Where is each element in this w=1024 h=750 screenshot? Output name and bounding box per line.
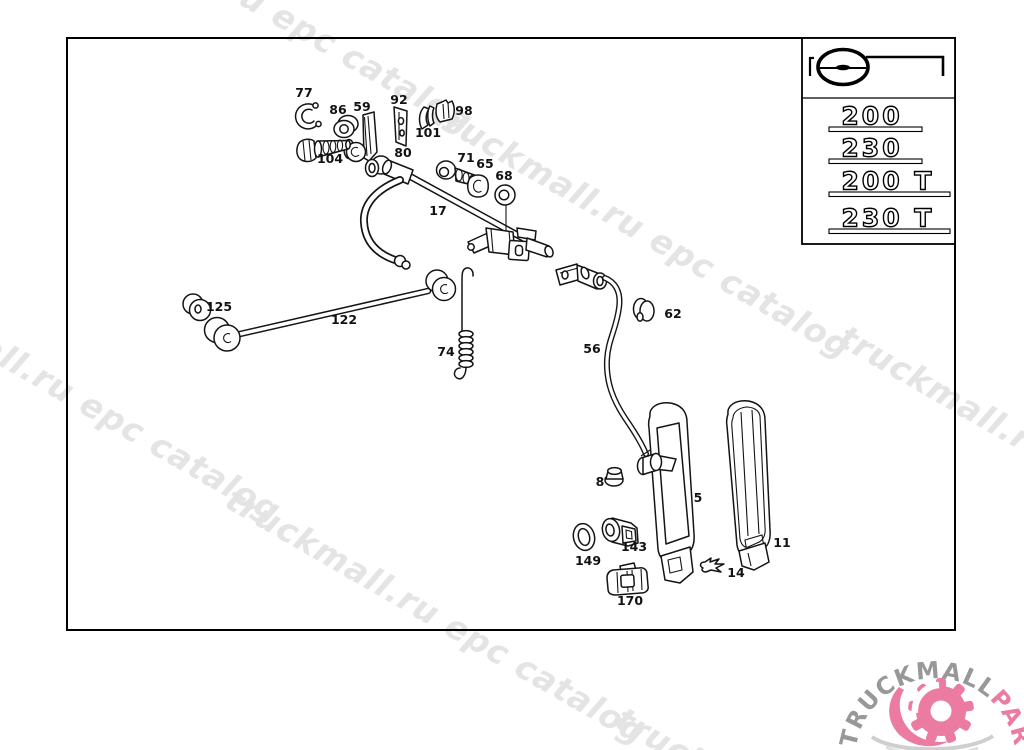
part-11-pedal-pad (727, 401, 771, 570)
part-68-washer (495, 185, 515, 205)
part-label-62: 62 (664, 306, 681, 321)
part-label-143: 143 (621, 539, 647, 554)
badge-200t: 200 T (842, 167, 935, 196)
parts-diagram-page: truckmall.ru epc catalog truckmall.ru ep… (0, 0, 1024, 750)
part-label-98: 98 (455, 103, 472, 118)
part-5-pedal (638, 403, 695, 583)
part-label-5: 5 (694, 490, 703, 505)
part-65-grommet (468, 175, 489, 197)
watermark-text: truckmall.ru epc catalog (219, 479, 653, 750)
part-label-59: 59 (353, 99, 370, 114)
part-170-clip-block (607, 563, 648, 595)
watermark-text: truckmall.ru epc catalog (46, 0, 480, 141)
part-label-101: 101 (415, 125, 441, 140)
part-label-149: 149 (575, 553, 601, 568)
part-86-nut (334, 116, 358, 138)
badge-230t: 230 T (842, 204, 935, 233)
badge-underline (829, 229, 950, 234)
part-label-74: 74 (437, 344, 455, 359)
badge-underline (829, 127, 922, 132)
part-label-8: 8 (596, 474, 605, 489)
badge-underline (829, 192, 950, 197)
part-label-11: 11 (773, 535, 790, 550)
part-label-80: 80 (394, 145, 412, 160)
part-label-17: 17 (429, 203, 446, 218)
part-92-plate (394, 107, 407, 146)
part-label-14: 14 (727, 565, 745, 580)
part-label-170: 170 (617, 593, 643, 608)
part-98-clip (436, 100, 454, 122)
part-label-65: 65 (476, 156, 493, 171)
part-8-cap (605, 468, 623, 486)
part-label-68: 68 (495, 168, 512, 183)
part-56-rod (556, 264, 650, 456)
part-149-ring (571, 521, 598, 552)
part-77-snap-ring (296, 103, 322, 129)
part-label-122: 122 (331, 312, 357, 327)
badge-230: 230 (841, 134, 902, 163)
part-label-86: 86 (329, 102, 347, 117)
model-inset: 200 230 200 T 230 T (802, 38, 955, 244)
part-62-grommet (634, 299, 655, 322)
part-74-spring (454, 268, 473, 379)
badge-200: 200 (841, 102, 902, 131)
part-122-link-rod (205, 270, 456, 351)
part-label-104: 104 (317, 151, 343, 166)
part-14-clip (701, 558, 724, 572)
watermark-text: truckmall.ru epc catalog (832, 317, 1024, 590)
badge-underline (829, 159, 922, 164)
part-label-77: 77 (295, 85, 312, 100)
part-label-56: 56 (583, 341, 601, 356)
part-label-92: 92 (390, 92, 407, 107)
part-label-125: 125 (206, 299, 232, 314)
part-label-71: 71 (457, 150, 474, 165)
